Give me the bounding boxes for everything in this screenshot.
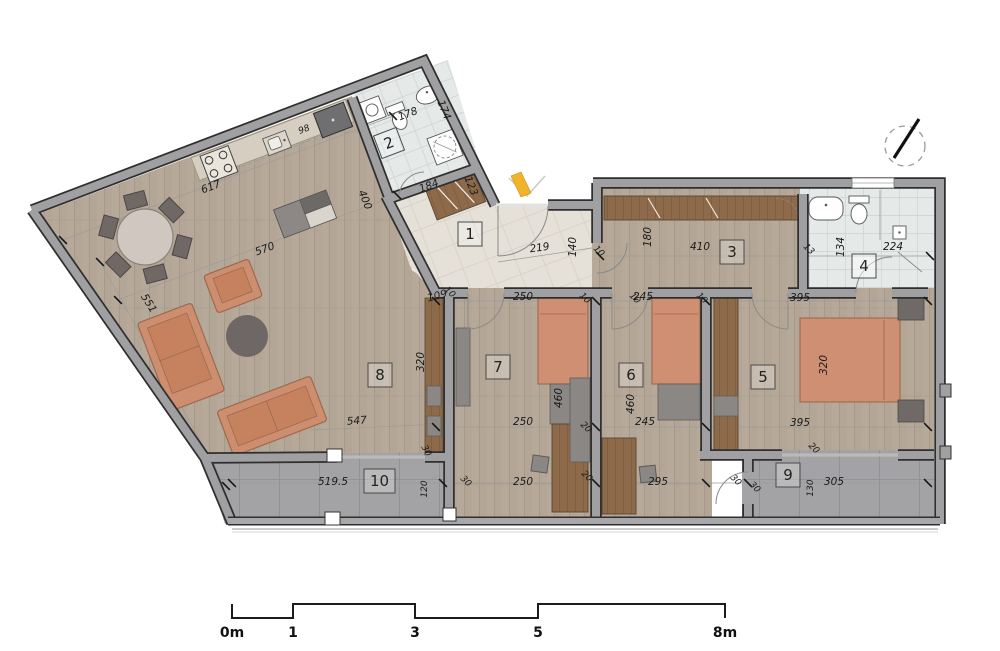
dim-label: 460 [625,394,637,414]
room-number-4: 4 [859,257,869,275]
dining-table [117,209,173,265]
room-number-7: 7 [493,358,503,376]
north-needle [894,119,919,158]
dim-label: 224 [883,241,903,253]
bed-5 [800,318,900,402]
room-7-tag: 7 [486,355,510,379]
dim-label: 140 [567,237,579,257]
dim-label: 305 [824,476,844,488]
floor-plan: 617 570 551 98 178 174 184 123 400 219 1… [0,0,1000,651]
room-number-6: 6 [626,366,636,384]
scale-bar: 0m 1 3 5 8m [220,604,737,641]
pillar-1 [327,449,342,462]
dim-label: 395 [790,417,810,429]
scale-label-5: 5 [533,625,543,641]
gray-box-5 [714,396,738,416]
room-number-8: 8 [375,366,385,384]
north-indicator [885,119,925,166]
dim-label: 180 [642,227,654,247]
pillar-3 [443,508,456,521]
pillar-2 [325,512,340,525]
scale-label-1: 1 [288,625,298,641]
dim-label: 250 [513,476,533,488]
sink-4 [809,197,843,220]
media-gray-box-1 [427,386,441,406]
dim-label: 320 [415,352,427,372]
room-number-9: 9 [783,466,793,484]
scale-label-0m: 0m [220,625,244,641]
room-number-1: 1 [465,225,475,243]
room-3-tag: 3 [720,240,744,264]
bed-6 [652,298,700,384]
wardrobe-7-left [456,328,470,406]
room-5-tag: 5 [751,365,775,389]
dim-label: 130 [806,479,816,496]
room-number-10: 10 [370,472,389,490]
dim-label: 295 [648,476,668,488]
wall-bump-1 [940,384,951,397]
scale-label-3: 3 [410,625,420,641]
corridor-wardrobe [604,196,800,220]
toilet-4 [849,196,869,224]
room-number-5: 5 [758,368,768,386]
cabinet-6 [658,384,700,420]
room-4-tag: 4 [852,254,876,278]
room-1-tag: 1 [458,222,482,246]
north-circle [885,126,925,166]
nightstand-5b [898,400,924,422]
rug [226,315,268,357]
scale-label-8m: 8m [713,625,737,641]
dim-label: 547 [346,414,367,427]
bed-7 [538,298,588,384]
dim-label: 519.5 [318,476,348,488]
dim-label: 320 [818,355,830,375]
entrance-arrow-mark [511,172,531,197]
wall-bump-2 [940,446,951,459]
dim-label: 134 [835,237,847,257]
floor-plan-page: 617 570 551 98 178 174 184 123 400 219 1… [0,0,1000,651]
dim-label: 245 [635,416,655,428]
room-6-tag: 6 [619,363,643,387]
dim-label: 395 [790,292,810,304]
dim-label: 250 [513,291,533,303]
dim-label: 410 [690,241,710,253]
room-8-tag: 8 [368,363,392,387]
dim-label: 30 [728,473,743,488]
scale-bar-line [232,604,725,618]
wardrobe-5-left [714,298,738,450]
nightstand-5a [898,298,924,320]
dim-label: 460 [553,388,565,408]
room-number-3: 3 [727,243,737,261]
chair-7 [531,455,549,473]
room-10-tag: 10 [364,469,395,493]
dim-label: 120 [420,480,430,497]
desk-6 [602,438,636,514]
dim-label: 250 [513,416,533,428]
entrance-arrow [509,172,545,197]
closet-6-left [570,378,590,462]
room-9-tag: 9 [776,463,800,487]
